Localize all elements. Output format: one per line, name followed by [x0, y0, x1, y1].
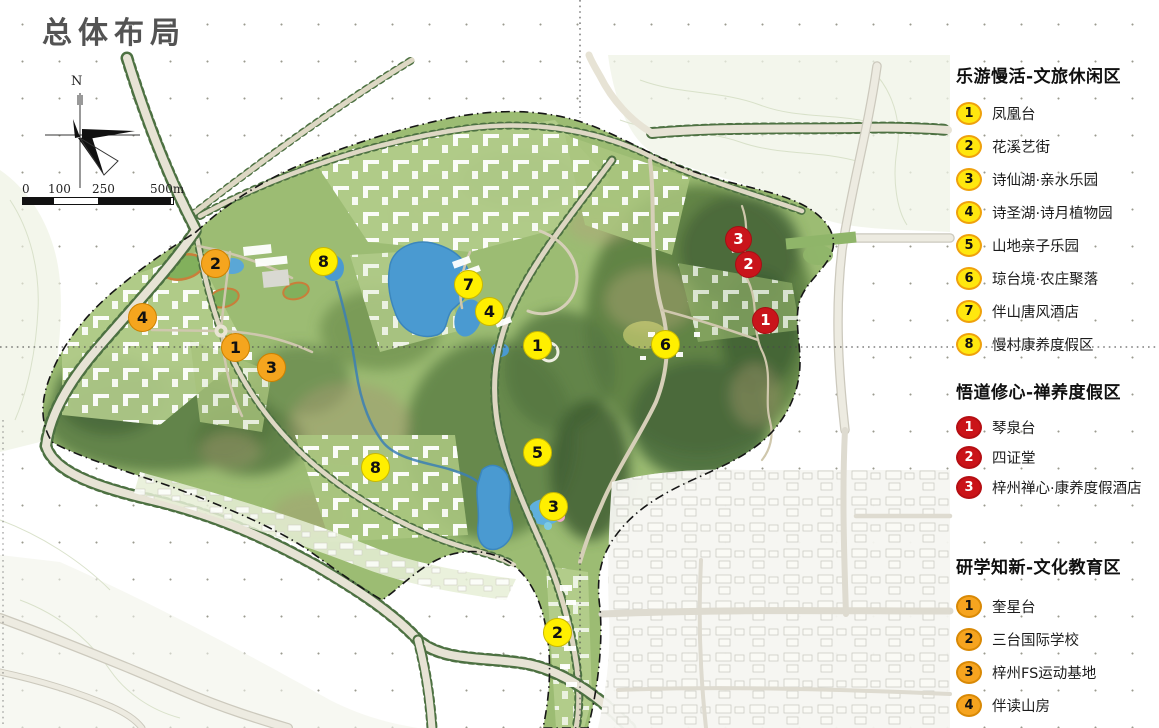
legend-item-label: 山地亲子乐园 — [992, 235, 1079, 256]
legend-item: 2四证堂 — [956, 447, 1156, 467]
legend-marker-red: 3 — [956, 476, 982, 499]
legend-item: 3诗仙湖·亲水乐园 — [956, 169, 1156, 189]
legend-item-label: 三台国际学校 — [992, 629, 1079, 650]
legend-list-leisure: 1凤凰台 2花溪艺街 3诗仙湖·亲水乐园 4诗圣湖·诗月植物园 5山地亲子乐园 … — [956, 103, 1156, 354]
legend-section-title-zen: 悟道修心-禅养度假区 — [956, 378, 1156, 403]
legend-item-label: 琴泉台 — [992, 417, 1036, 438]
legend-item: 7伴山唐风酒店 — [956, 301, 1156, 321]
scale-label-100: 100 — [48, 182, 71, 196]
legend-marker-orange: 1 — [956, 595, 982, 618]
legend-item: 1琴泉台 — [956, 417, 1156, 437]
legend-item: 3梓州禅心·康养度假酒店 — [956, 477, 1156, 497]
legend-item: 4诗圣湖·诗月植物园 — [956, 202, 1156, 222]
legend-marker-yellow: 4 — [956, 201, 982, 224]
legend-item: 2花溪艺街 — [956, 136, 1156, 156]
scale-label-500m: 500m — [150, 182, 184, 196]
legend-item: 5山地亲子乐园 — [956, 235, 1156, 255]
scale-bar: 0 100 250 500m — [20, 182, 190, 210]
legend-item-label: 琼台境·农庄聚落 — [992, 268, 1098, 289]
legend-list-education: 1奎星台 2三台国际学校 3梓州FS运动基地 4伴读山房 — [956, 596, 1156, 715]
legend-item-label: 诗仙湖·亲水乐园 — [992, 169, 1098, 190]
scale-label-250: 250 — [92, 182, 115, 196]
legend-marker-yellow: 3 — [956, 168, 982, 191]
legend-marker-yellow: 2 — [956, 135, 982, 158]
legend-item-label: 四证堂 — [992, 447, 1036, 468]
legend-marker-yellow: 6 — [956, 267, 982, 290]
compass-north-label: N — [71, 74, 82, 89]
page-title: 总体布局 — [42, 8, 186, 52]
legend-item-label: 凤凰台 — [992, 103, 1036, 124]
legend-section-title-leisure: 乐游慢活-文旅休闲区 — [956, 62, 1156, 87]
legend-marker-red: 2 — [956, 446, 982, 469]
legend-marker-yellow: 1 — [956, 102, 982, 125]
legend-marker-orange: 4 — [956, 694, 982, 717]
legend-item: 6琼台境·农庄聚落 — [956, 268, 1156, 288]
legend-marker-yellow: 8 — [956, 333, 982, 356]
masterplan-canvas: 总体布局 N 0 100 250 500m 8741658322413321 乐… — [0, 0, 1159, 728]
legend-item: 1奎星台 — [956, 596, 1156, 616]
legend-panel: 乐游慢活-文旅休闲区 1凤凰台 2花溪艺街 3诗仙湖·亲水乐园 4诗圣湖·诗月植… — [956, 62, 1156, 728]
legend-item: 4伴读山房 — [956, 695, 1156, 715]
legend-item-label: 花溪艺街 — [992, 136, 1050, 157]
legend-item-label: 伴读山房 — [992, 695, 1050, 716]
scale-label-0: 0 — [22, 182, 30, 196]
legend-marker-yellow: 5 — [956, 234, 982, 257]
legend-item: 8慢村康养度假区 — [956, 334, 1156, 354]
legend-marker-orange: 3 — [956, 661, 982, 684]
legend-item: 2三台国际学校 — [956, 629, 1156, 649]
legend-marker-orange: 2 — [956, 628, 982, 651]
legend-list-zen: 1琴泉台 2四证堂 3梓州禅心·康养度假酒店 — [956, 417, 1156, 497]
legend-marker-red: 1 — [956, 416, 982, 439]
legend-item-label: 奎星台 — [992, 596, 1036, 617]
compass-rose — [45, 93, 140, 188]
legend-item: 1凤凰台 — [956, 103, 1156, 123]
town-area — [598, 430, 950, 728]
legend-item-label: 梓州FS运动基地 — [992, 662, 1096, 683]
legend-item: 3梓州FS运动基地 — [956, 662, 1156, 682]
legend-item-label: 伴山唐风酒店 — [992, 301, 1079, 322]
legend-item-label: 梓州禅心·康养度假酒店 — [992, 477, 1142, 498]
legend-section-title-education: 研学知新-文化教育区 — [956, 553, 1156, 578]
legend-item-label: 慢村康养度假区 — [992, 334, 1094, 355]
legend-item-label: 诗圣湖·诗月植物园 — [992, 202, 1113, 223]
scale-bar-graphic — [22, 197, 174, 205]
legend-marker-yellow: 7 — [956, 300, 982, 323]
